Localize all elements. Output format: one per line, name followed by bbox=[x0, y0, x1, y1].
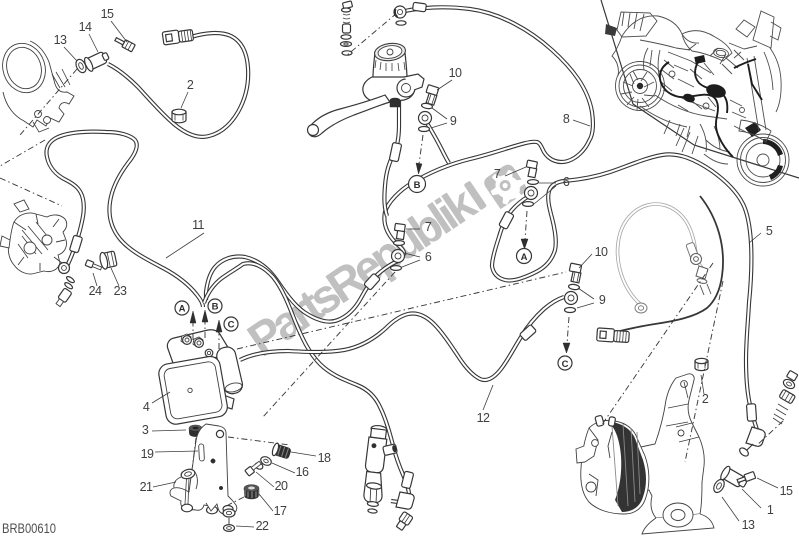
svg-text:19: 19 bbox=[141, 447, 154, 461]
svg-text:8: 8 bbox=[563, 112, 570, 126]
svg-text:21: 21 bbox=[140, 480, 153, 494]
svg-text:4: 4 bbox=[143, 400, 150, 414]
svg-text:7: 7 bbox=[425, 220, 432, 234]
svg-text:10: 10 bbox=[595, 245, 608, 259]
svg-text:2: 2 bbox=[187, 78, 194, 92]
svg-text:A: A bbox=[521, 252, 528, 263]
svg-text:B: B bbox=[212, 302, 219, 313]
svg-text:2: 2 bbox=[702, 392, 709, 406]
svg-text:C: C bbox=[562, 359, 569, 370]
svg-text:17: 17 bbox=[274, 504, 287, 518]
svg-text:13: 13 bbox=[54, 33, 67, 47]
svg-text:20: 20 bbox=[275, 479, 288, 493]
svg-text:1: 1 bbox=[767, 503, 774, 517]
svg-text:A: A bbox=[179, 304, 186, 315]
svg-text:7: 7 bbox=[494, 167, 501, 181]
svg-text:5: 5 bbox=[766, 224, 773, 238]
svg-text:24: 24 bbox=[89, 284, 102, 298]
svg-text:13: 13 bbox=[742, 518, 755, 532]
svg-text:23: 23 bbox=[114, 284, 127, 298]
svg-text:9: 9 bbox=[599, 293, 606, 307]
svg-text:BRB00610: BRB00610 bbox=[2, 521, 56, 536]
svg-text:15: 15 bbox=[780, 484, 793, 498]
svg-text:16: 16 bbox=[296, 465, 309, 479]
svg-text:12: 12 bbox=[477, 411, 490, 425]
svg-text:15: 15 bbox=[101, 7, 114, 21]
svg-text:6: 6 bbox=[563, 175, 570, 189]
svg-text:B: B bbox=[414, 180, 421, 191]
svg-text:9: 9 bbox=[450, 114, 457, 128]
svg-text:11: 11 bbox=[192, 218, 204, 232]
svg-text:22: 22 bbox=[256, 519, 269, 533]
svg-text:10: 10 bbox=[449, 66, 462, 80]
svg-text:3: 3 bbox=[142, 423, 149, 437]
svg-text:PartsRepublik: PartsRepublik bbox=[238, 175, 486, 366]
svg-text:14: 14 bbox=[79, 20, 92, 34]
svg-text:6: 6 bbox=[425, 250, 432, 264]
svg-text:C: C bbox=[228, 320, 235, 331]
svg-text:18: 18 bbox=[318, 451, 331, 465]
